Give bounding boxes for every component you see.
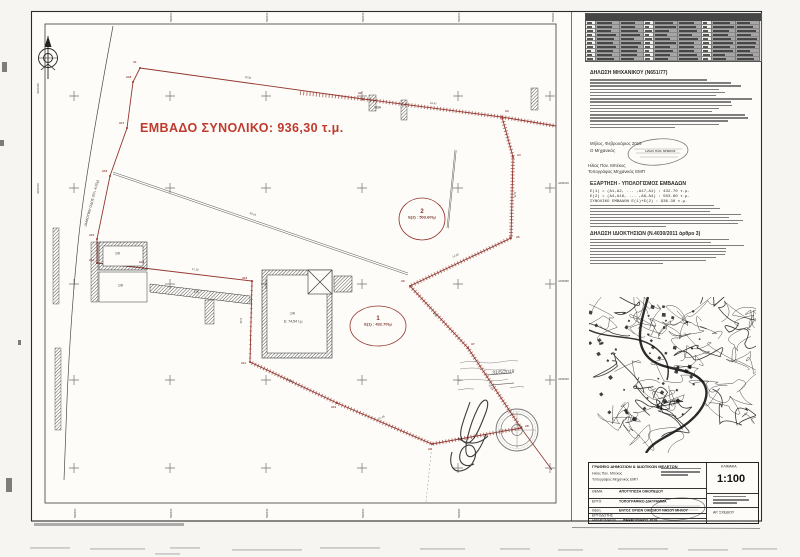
declaration-owner-title: ΔΗΛΩΣΗ ΙΔΙΟΚΤΗΣΙΩΝ (Ν.4030/2011 άρθρο 3) [590,231,700,236]
measure-label: 9.30 [239,318,242,323]
illegible-text-line [590,101,731,103]
scanned-topographic-sheet: ΕΜΒΑΔΟ ΣΥΝΟΛΙΚΟ: 936,30 τ.μ. 2 Ε(2) : 50… [0,0,800,557]
illegible-text-line [590,111,712,113]
illegible-text-line [590,239,729,240]
illegible-text-line [590,105,732,107]
illegible-text-line [590,251,726,252]
illegible-text-line [590,120,728,122]
illegible-text-line [590,117,748,119]
grid-coordinate-label: 4405980 [558,280,569,283]
illegible-text-line [590,248,726,249]
vertex-label: Α9 [428,448,432,451]
title-block: ΓΡΑΦΕΙΟ ΔΗΜΟΣΙΩΝ & ΙΔΙΩΤΙΚΩΝ ΜΕΛΕΤΩΝ Ηλί… [588,462,759,524]
grid-coordinate-label: 598440 [266,509,269,518]
area-2-bubble: 2 Ε(2) : 503.60τμ [392,209,452,224]
vertex-label: Α15 [89,234,94,237]
illegible-text-line [590,89,719,91]
vertex-label: Α10 [331,406,336,409]
grid-coordinate-label: 4406030 [558,182,569,185]
titleblock-name: Ηλίας Παν. Μπέκος [592,472,622,476]
titleblock-row-date-label: ΗΜΕΡΟΜΗΝΙΑ [592,519,616,523]
signoff-name: Ηλίας Παν. Μπέκος [588,164,625,168]
vertex-label: Α5 [516,236,520,239]
coordinate-cell [644,57,654,61]
vertex-label: Α16 [102,170,107,173]
titleblock-drawing-no-label: ΑΡ. ΣΧΕΔΙΟΥ [713,511,734,515]
titleblock-row-thema-value: ΑΠΟΤΥΠΩΣΗ ΟΙΚΟΠΕΔΟΥ [619,490,663,494]
grid-coordinate-label: 598440 [362,13,365,22]
coordinate-table-row [586,57,761,61]
engineer-stamp-name: ΗΛΙΑΣ ΠΑΝ. ΜΠΕΚΟΣ [645,150,670,153]
sheet-reference-smudge [34,523,184,526]
grid-coordinate-label: 598420 [170,509,173,518]
illegible-text-line [590,79,707,81]
illegible-text-line [590,263,663,264]
illegible-text-line [713,499,749,500]
misc-label-yba: ΥΒΑ [374,106,381,110]
coordinate-cell [678,57,702,61]
illegible-text-line [590,114,745,116]
coordinate-cell [620,57,644,61]
coordinate-cell [654,57,678,61]
grid-coordinate-label: 598400 [170,13,173,22]
illegible-text-line [590,260,706,261]
coordinate-cell [712,57,736,61]
illegible-text-line [590,226,666,227]
building-label-4: 1/Κ [290,312,295,316]
vertex-label: Α4 [517,154,521,157]
vertex-label: Α2 [358,92,362,95]
total-area-label: ΕΜΒΑΔΟ ΣΥΝΟΛΙΚΟ: 936,30 τ.μ. [140,121,344,135]
grid-coordinate-label: 598460 [362,509,365,518]
illegible-text-line [590,208,720,209]
illegible-text-line [713,502,737,503]
vertex-label: Α17 [119,122,124,125]
grid-coordinate-label: 598460 [458,13,461,22]
vertex-label: Α14 [89,259,94,262]
illegible-text-line [590,82,731,84]
titleblock-row-date-value: ΦΕΒΡΟΥΑΡΙΟΣ 2019 [623,519,657,523]
illegible-text-line [590,245,744,246]
titleblock-row-thesi-value: ΕΝΤΟΣ ΟΡΙΩΝ ΟΙΚΙΣΜΟΥ ΝΗΣΟΥ ΜΗΛΟΥ [619,509,688,513]
illegible-text-line [590,95,716,97]
illegible-text-line [590,242,711,243]
vertex-label: Α11 [241,362,246,365]
area-1-bubble: 1 Ε(1) : 432.70τμ [343,316,413,331]
declaration-engineer-text [590,79,753,130]
titleblock-row-ergo-value: ΤΟΠΟΓΡΑΦΙΚΟ ΔΙΑΓΡΑΜΜΑ [619,500,667,504]
area-computation-line-3: ΣΥΝΟΛΙΚΟ ΕΜΒΑΔΟΝ Ε(1)+Ε(2) : 936.30 τ.μ. [590,199,687,204]
coordinate-table [585,13,762,62]
area-2-label: Ε(2) : 503.60τμ [407,215,437,220]
illegible-text-line [590,220,743,221]
grid-coordinate-label: 598480 [552,13,555,22]
illegible-text-line [590,217,729,218]
grid-coordinate-label: 4406080 [37,83,40,94]
vertex-label: Α8 [525,425,529,428]
area-computation-text [590,205,750,229]
measure-label: 18.42 [430,102,437,105]
grid-coordinate-label: 598400 [74,509,77,518]
titleblock-profession: Τοπογράφος Μηχανικός ΕΜΠ [592,478,638,482]
area-computation-line-1: Ε(1) = (Α1,Α2, ... ,Α17,Α1) : 432.70 τ.μ… [590,189,690,194]
vertex-label: Α1 [133,61,137,64]
signoff-role: Ο Μηχανικός [590,149,615,153]
grid-coordinate-label: 598480 [458,509,461,518]
titleblock-scale-value: 1:100 [717,473,745,485]
titleblock-row-thema-label: ΘΕΜΑ [592,490,602,494]
area-computation-line-2: Ε(2) = (Α4,Α18, ... ,Α8,Α4) : 503.60 τ.μ… [590,194,690,199]
vertex-label: Α18 [126,76,131,79]
illegible-text-line [590,98,752,100]
titleblock-row-ergodotis-label: ΕΡΓΟΔΟΤΗΣ [592,514,613,518]
area-computation-title: ΕΞΑΡΤΗΣΗ - ΥΠΟΛΟΓΙΣΜΟΣ ΕΜΒΑΔΩΝ [590,181,686,186]
coordinate-table-header [586,14,761,21]
vertex-label: Α13 [139,261,144,264]
illegible-text-line [590,205,714,206]
coordinate-cell [702,57,712,61]
illegible-text-line [590,257,716,258]
vertex-label: Α6 [401,280,405,283]
coordinate-cell [596,57,620,61]
illegible-text-line [661,471,700,472]
illegible-text-line [590,127,675,129]
coordinate-cell [586,57,596,61]
titleblock-row-thesi-label: Θέση [592,509,600,513]
building-label-1: 1/Κ [115,252,120,256]
grid-coordinate-label: 4405930 [558,378,569,381]
measure-label: 8.76 [513,192,516,197]
area-1-label: Ε(1) : 432.70τμ [361,322,396,327]
declaration-engineer-title: ΔΗΛΩΣΗ ΜΗΧΑΝΙΚΟΥ (Ν651/77) [590,70,667,75]
grid-coordinate-label: 4406030 [37,183,40,194]
illegible-text-line [661,474,688,475]
building-label-3: 1/Κ [194,290,200,294]
illegible-text-line [590,214,741,215]
illegible-text-line [661,468,701,469]
illegible-text-line [590,92,725,94]
round-seal [496,409,538,451]
grid-coordinate-label: 598420 [266,13,269,22]
illegible-text-line [590,211,710,212]
illegible-text-line [590,108,719,110]
vertex-label: Α12 [242,277,247,280]
vertex-label: Α7 [471,343,475,346]
illegible-text-line [590,223,738,224]
coordinate-cell [736,57,760,61]
declaration-owner-text [590,239,750,266]
titleblock-row-ergo-label: ΕΡΓΟ [592,500,601,504]
illegible-text-line [590,124,719,126]
main-building-area-label: Ε: 74,54 τ.μ. [284,320,303,324]
titleblock-code-box [713,496,751,506]
vertex-label: Α3 [505,110,509,113]
illegible-text-line [713,496,746,497]
illegible-text-line [590,254,725,255]
signoff-place-date: Μήλος, Φεβρουάριος 2019 [590,142,642,146]
titleblock-scale-label: ΚΛΙΜΑΚΑ [721,465,737,469]
illegible-text-line [590,85,741,87]
building-label-2: 1/Κ [118,284,123,288]
titleblock-contact [661,468,701,478]
signoff-title: Τοπογράφος Μηχανικός ΕΜΠ [588,170,645,174]
